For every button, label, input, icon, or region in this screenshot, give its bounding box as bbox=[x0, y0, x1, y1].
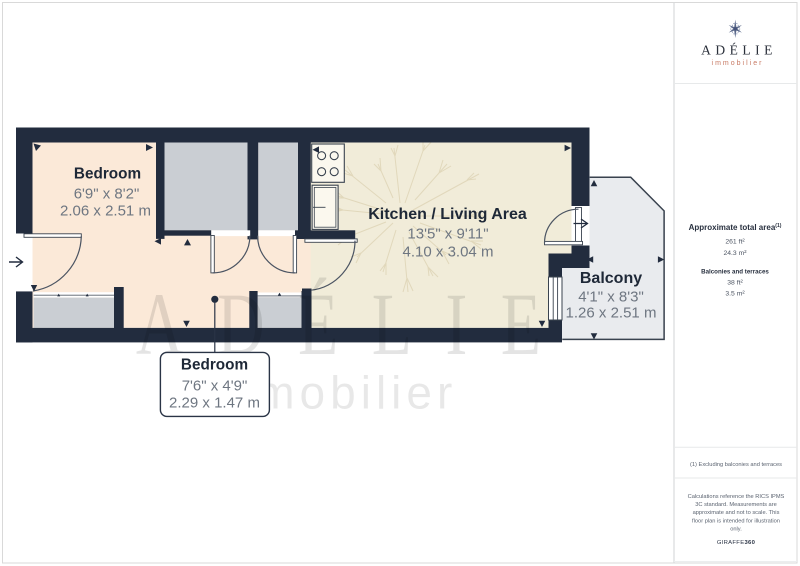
svg-text:Bedroom: Bedroom bbox=[181, 357, 248, 374]
svg-text:(1) Excluding balconies and te: (1) Excluding balconies and terraces bbox=[690, 462, 782, 468]
svg-text:ADÉLIE: ADÉLIE bbox=[701, 43, 777, 58]
svg-text:38 ft²: 38 ft² bbox=[727, 280, 743, 287]
svg-text:Approximate total area(1): Approximate total area(1) bbox=[689, 223, 782, 232]
svg-text:6'9" x 8'2": 6'9" x 8'2" bbox=[74, 185, 140, 202]
svg-text:2.29 x 1.47 m: 2.29 x 1.47 m bbox=[169, 394, 260, 411]
svg-text:approximate and not to scale.: approximate and not to scale. This bbox=[693, 510, 780, 516]
svg-text:13'5" x 9'11": 13'5" x 9'11" bbox=[407, 225, 488, 242]
svg-text:3.5 m²: 3.5 m² bbox=[725, 291, 745, 298]
svg-text:Kitchen / Living Area: Kitchen / Living Area bbox=[368, 206, 527, 223]
svg-text:1.26 x 2.51 m: 1.26 x 2.51 m bbox=[566, 304, 657, 321]
svg-text:Calculations reference the RIC: Calculations reference the RICS IPMS bbox=[688, 494, 785, 500]
svg-text:24.3 m²: 24.3 m² bbox=[723, 250, 747, 257]
svg-text:only.: only. bbox=[730, 527, 742, 533]
svg-text:261 ft²: 261 ft² bbox=[725, 239, 745, 246]
svg-text:7'6" x 4'9": 7'6" x 4'9" bbox=[182, 377, 248, 394]
svg-text:3C standard. Measurements are: 3C standard. Measurements are bbox=[695, 502, 777, 508]
svg-text:Bedroom: Bedroom bbox=[74, 166, 141, 183]
svg-text:immobilier: immobilier bbox=[712, 60, 764, 67]
svg-text:2.06 x 2.51 m: 2.06 x 2.51 m bbox=[60, 202, 151, 219]
svg-text:GIRAFFE360: GIRAFFE360 bbox=[717, 540, 756, 546]
svg-text:Balconies and terraces: Balconies and terraces bbox=[701, 268, 769, 275]
svg-text:4'1" x 8'3": 4'1" x 8'3" bbox=[578, 288, 644, 305]
svg-text:Balcony: Balcony bbox=[580, 270, 642, 287]
svg-text:4.10 x 3.04 m: 4.10 x 3.04 m bbox=[403, 243, 494, 260]
svg-text:floor plan is intended for ill: floor plan is intended for illustration bbox=[692, 518, 780, 524]
